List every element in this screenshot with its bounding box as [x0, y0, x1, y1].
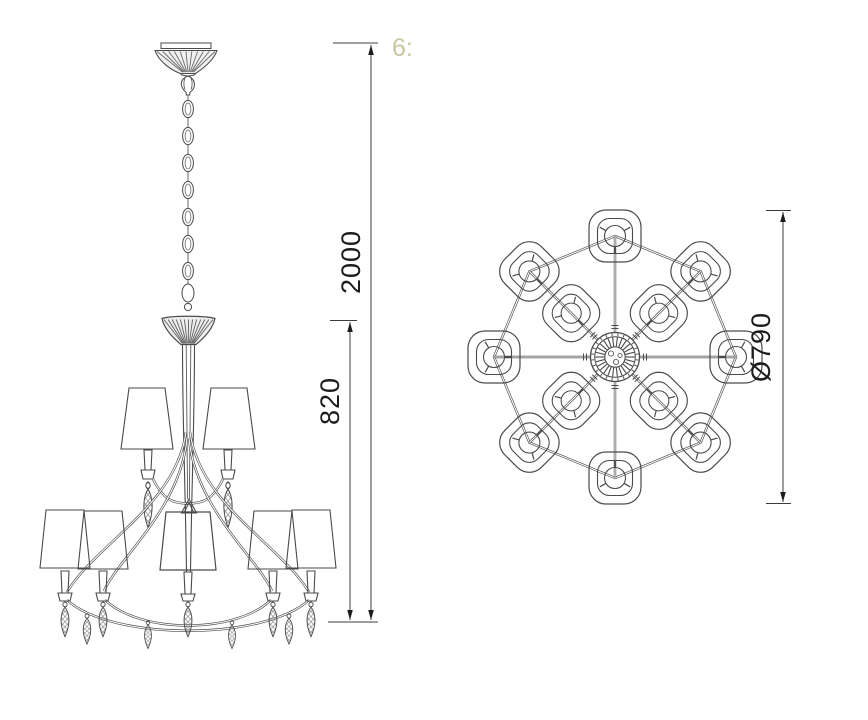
- chain-link: [183, 100, 194, 117]
- crystal-drop: [83, 613, 91, 644]
- side-elevation-view: 2000 820: [40, 43, 378, 649]
- upper-shade-left: [121, 388, 173, 449]
- crystal-drop: [99, 601, 107, 637]
- suspension-chain: [182, 95, 194, 311]
- crystal-drop: [285, 613, 293, 644]
- lower-tier: [40, 510, 336, 601]
- chandelier-technical-drawing: 2000 820: [0, 0, 868, 720]
- plan-central-hub: [591, 333, 640, 382]
- lower-shade: [40, 510, 90, 568]
- dim-label-diameter: Ø790: [746, 312, 776, 382]
- upper-candle-left: [141, 450, 155, 479]
- upper-tier: [121, 388, 255, 528]
- chain-links: [183, 100, 194, 279]
- plan-view: Ø790: [468, 210, 791, 504]
- lower-candle: [181, 572, 195, 601]
- dimension-body-height: 820: [315, 321, 357, 621]
- chain-link: [183, 235, 194, 252]
- technical-drawing-canvas: 2000 820: [0, 0, 868, 720]
- crystal-drop: [307, 601, 315, 637]
- upper-candle-right: [221, 450, 235, 479]
- lower-shade: [286, 510, 336, 568]
- chain-link: [183, 181, 194, 198]
- chain-link: [183, 154, 194, 171]
- fluted-trumpet: [162, 316, 215, 344]
- upper-shade-right: [203, 388, 255, 449]
- dimension-overall-height: 2000: [328, 43, 378, 622]
- crystal-drop: [269, 601, 277, 637]
- canopy-finial: [181, 76, 194, 95]
- dimension-diameter: Ø790: [746, 211, 791, 504]
- chain-link: [183, 127, 194, 144]
- stem-spire: [182, 499, 197, 513]
- crystal-drop: [61, 601, 69, 637]
- ceiling-canopy: [155, 43, 217, 76]
- crystal-drop: [145, 620, 152, 649]
- crystal-drop: [229, 620, 236, 649]
- lower-shade-center: [160, 512, 216, 570]
- watermark-text: 6:: [392, 34, 413, 62]
- chain-link: [183, 262, 194, 279]
- dim-label-2000: 2000: [336, 230, 366, 294]
- dim-label-820: 820: [315, 377, 345, 425]
- lower-crystals: [61, 601, 315, 649]
- chain-link: [183, 208, 194, 225]
